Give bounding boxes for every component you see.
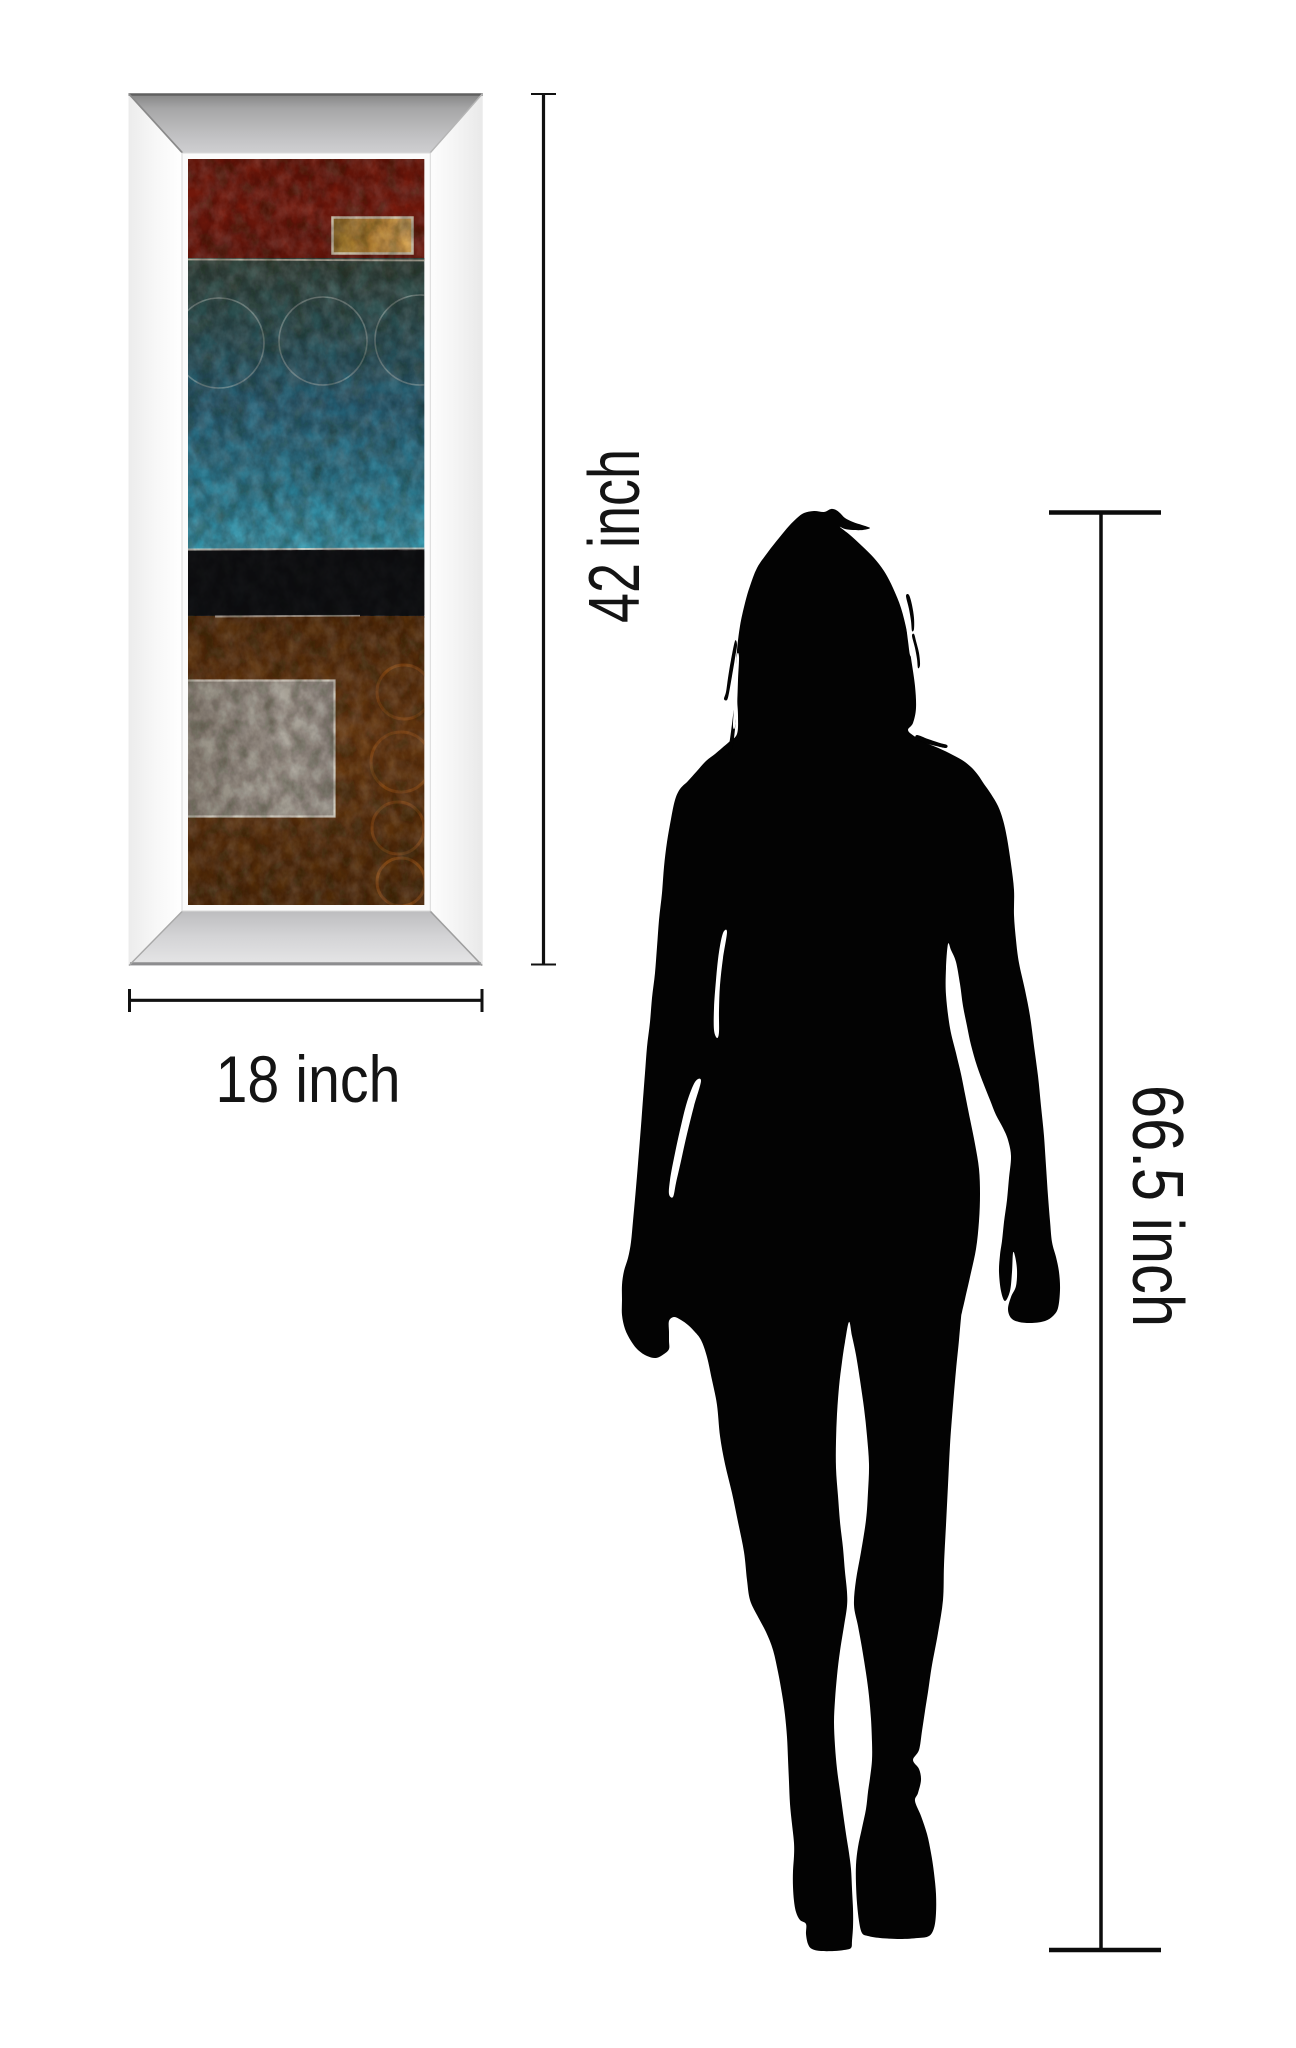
svg-text:18 inch: 18 inch	[216, 1042, 401, 1116]
svg-text:66.5 inch: 66.5 inch	[1117, 1085, 1197, 1327]
svg-text:42 inch: 42 inch	[575, 449, 655, 623]
